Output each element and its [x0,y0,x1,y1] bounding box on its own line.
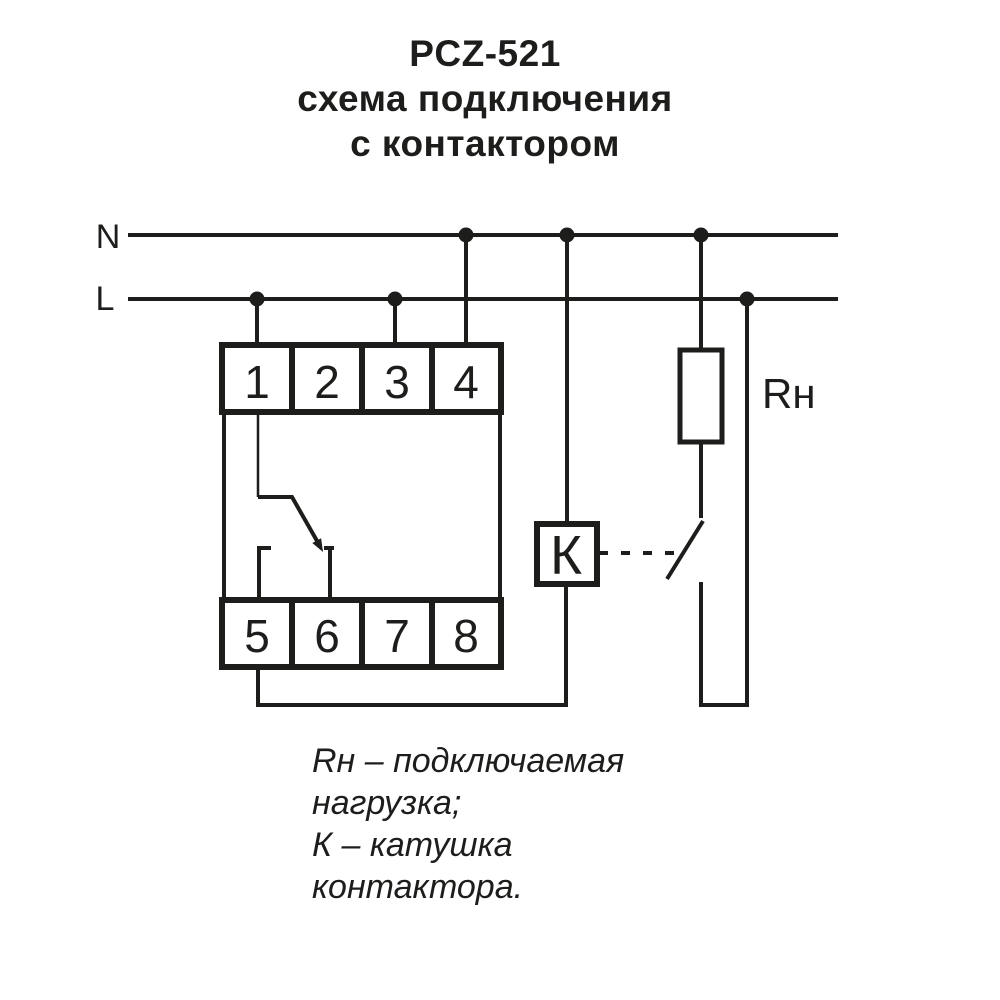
junction-dot [560,228,575,243]
legend-line-coil-2: контактора. [312,866,624,908]
legend-line-coil: К – катушка [312,824,624,866]
junction-dot [694,228,709,243]
terminal-8-label: 8 [453,610,479,662]
terminal-7-label: 7 [384,610,410,662]
terminal-1-label: 1 [244,356,270,408]
junction-dots [250,228,755,307]
device-body [224,413,500,600]
junction-dot [459,228,474,243]
coil-label: К [550,524,582,586]
terminal-5-label: 5 [244,610,270,662]
junction-dot [388,292,403,307]
legend-line-load: Rн – подключаемая [312,740,624,782]
load-resistor [680,350,722,442]
bus-l-label: L [96,280,115,318]
terminal-3-label: 3 [384,356,410,408]
contactor-contact-blade [667,521,703,579]
legend-caption: Rн – подключаемая нагрузка; К – катушка … [312,740,624,908]
legend-line-load-2: нагрузка; [312,782,624,824]
load-label: Rн [762,370,816,417]
bus-n-label: N [96,218,121,256]
junction-dot [250,292,265,307]
terminal-6-label: 6 [314,610,340,662]
wiring-diagram-page: PCZ-521 схема подключения с контактором [0,0,1000,1000]
terminal-2-label: 2 [314,356,340,408]
terminal-4-label: 4 [453,356,479,408]
